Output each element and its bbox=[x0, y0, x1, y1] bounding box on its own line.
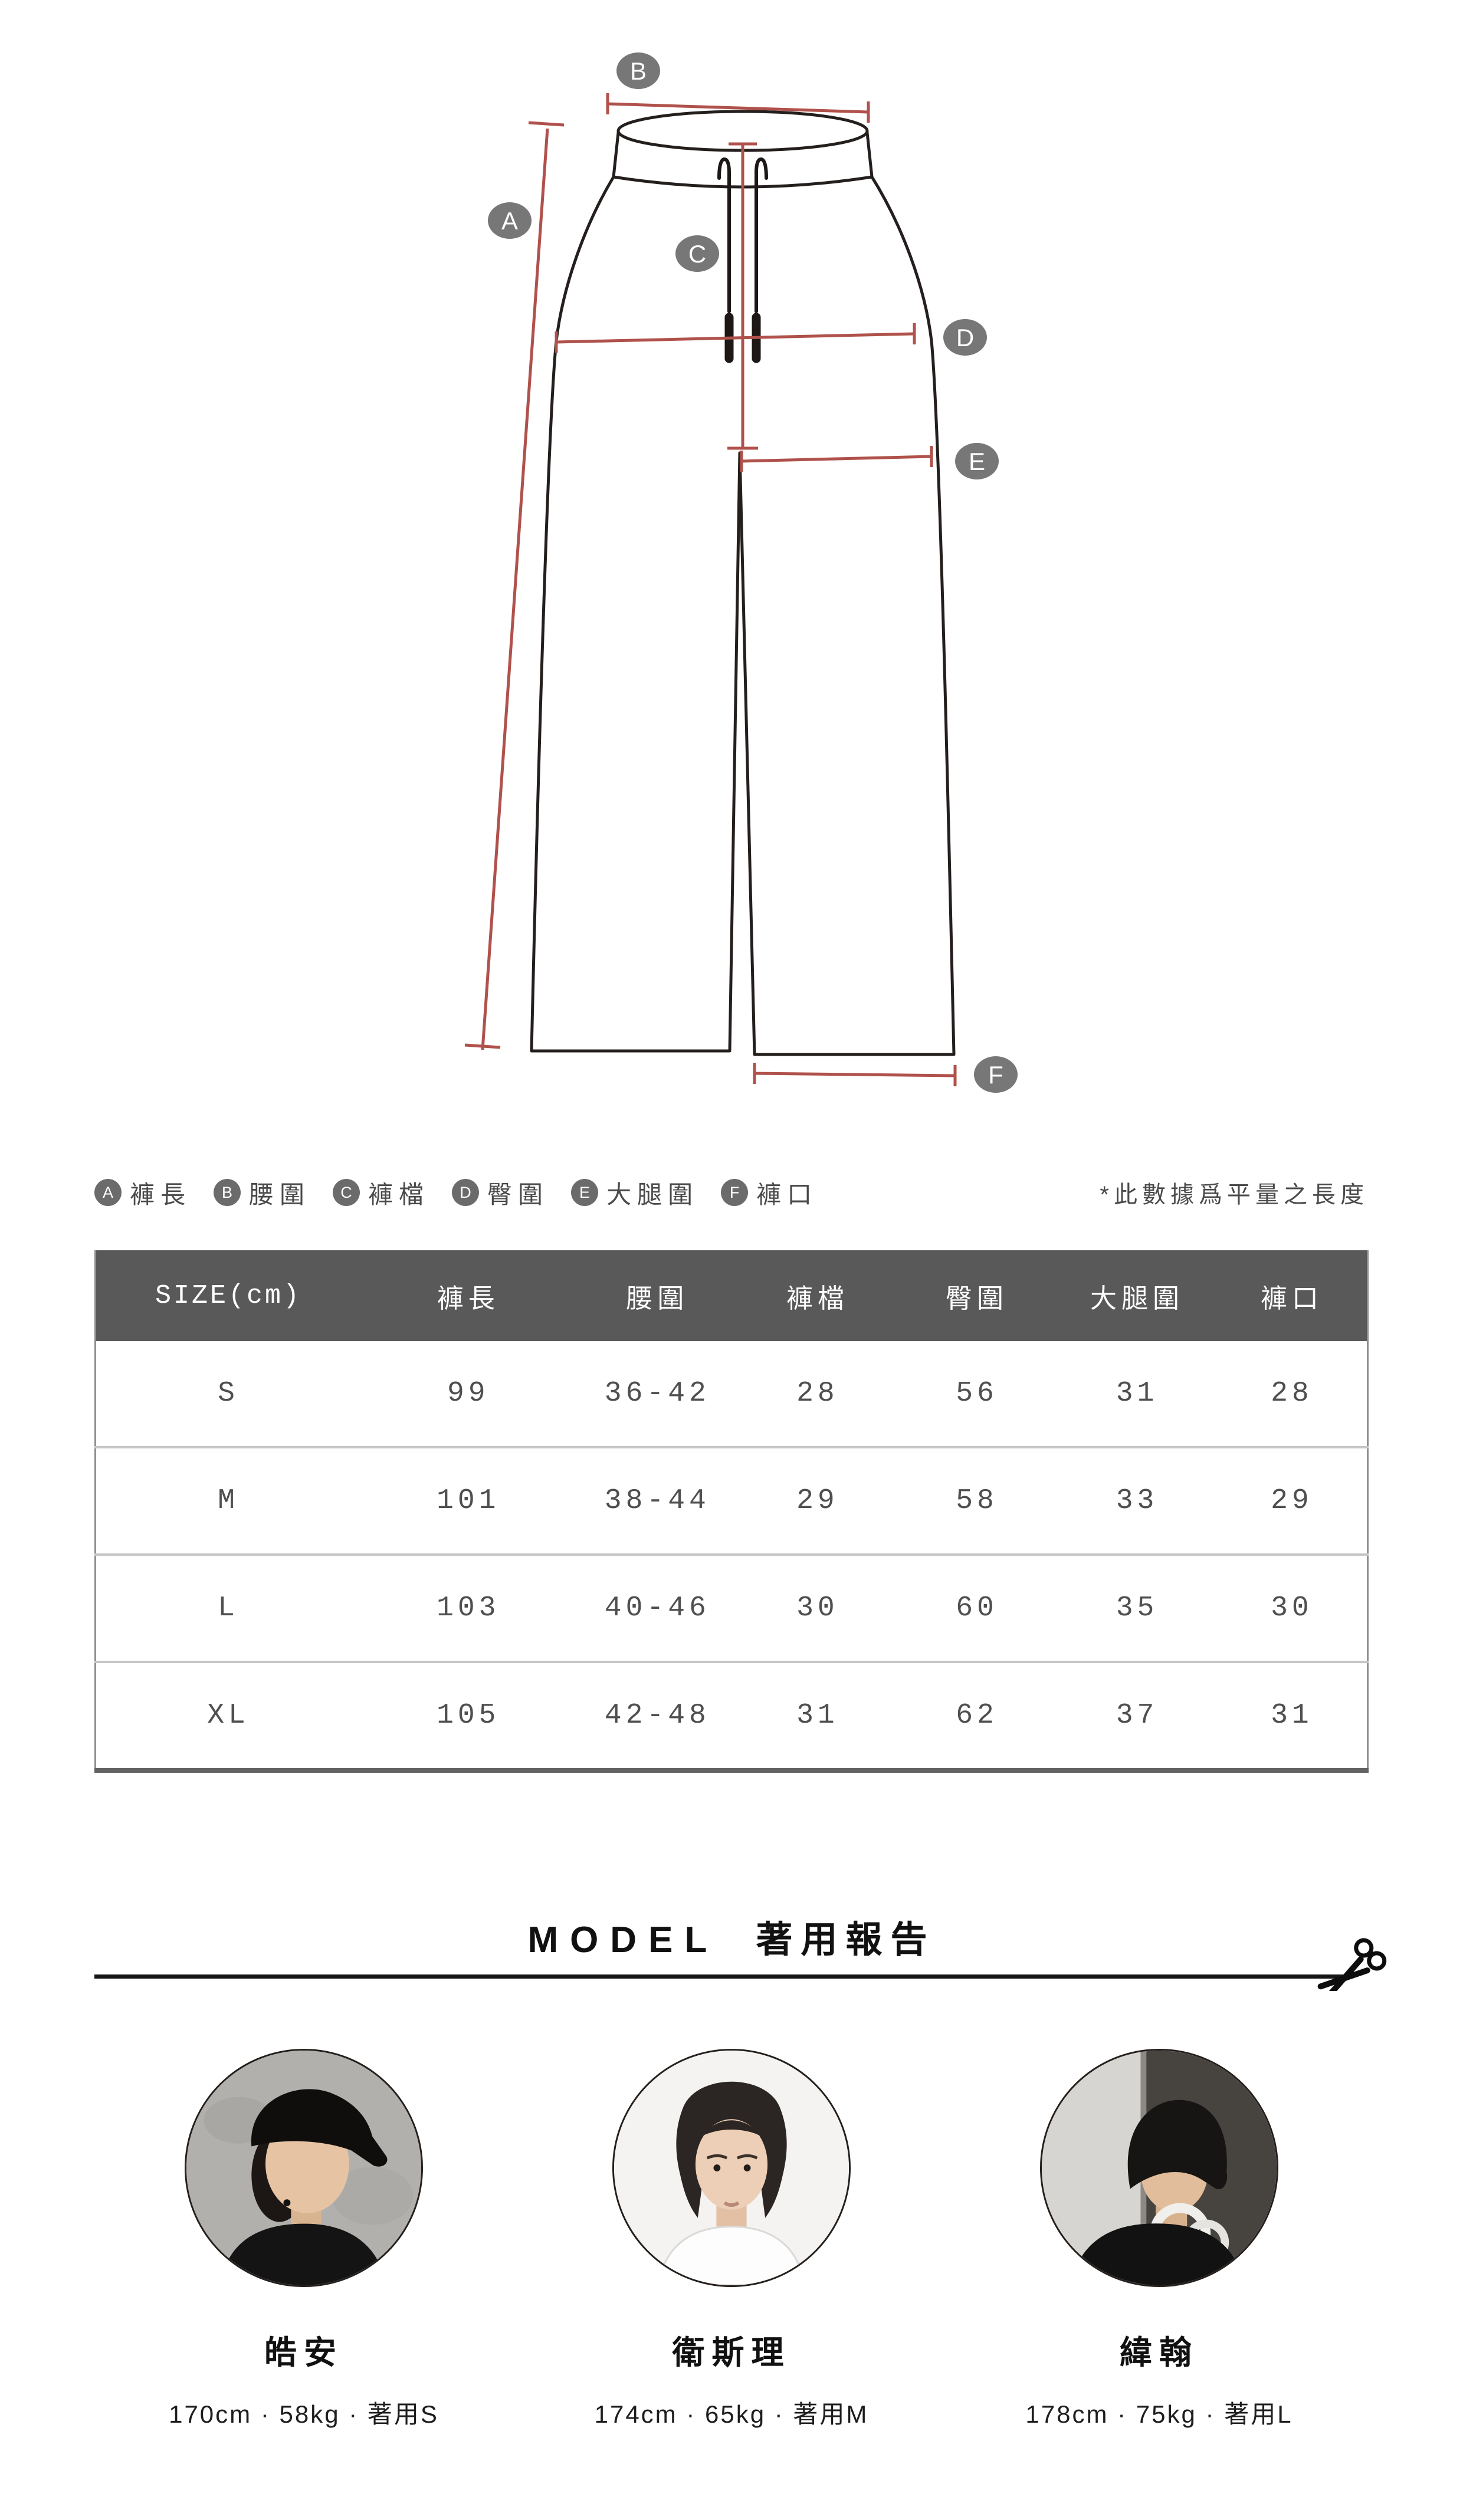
col-header-waist: 腰圍 bbox=[576, 1250, 739, 1341]
pants-measure-diagram: A B C D E F bbox=[431, 35, 1080, 1126]
model-card-weihan: 緯翰 178cm · 75kg · 著用L bbox=[1012, 2049, 1307, 2430]
model-card-wesley: 衛斯理 174cm · 65kg · 著用M bbox=[584, 2049, 879, 2430]
measure-line-F bbox=[755, 1063, 955, 1086]
diagram-label-e: E bbox=[955, 443, 999, 479]
svg-text:A: A bbox=[501, 207, 518, 235]
col-header-thigh: 大腿圍 bbox=[1057, 1250, 1217, 1341]
table-row: M 101 38-44 29 58 33 29 bbox=[96, 1447, 1368, 1555]
legend-item-f: F 褲口 bbox=[721, 1175, 818, 1211]
size-cell: S bbox=[96, 1341, 361, 1447]
legend-circle-d: D bbox=[452, 1179, 479, 1206]
legend-label-c: 褲檔 bbox=[368, 1175, 429, 1211]
size-table-header-row: SIZE(cm) 褲長 腰圍 褲檔 臀圍 大腿圍 褲口 bbox=[96, 1250, 1368, 1341]
size-cell: M bbox=[96, 1447, 361, 1555]
scissors-icon bbox=[1307, 1920, 1396, 1991]
legend-circle-e: E bbox=[571, 1179, 598, 1206]
drawstring-right bbox=[756, 159, 766, 311]
col-header-crotch: 褲檔 bbox=[739, 1250, 897, 1341]
model-stats: 178cm · 75kg · 著用L bbox=[1012, 2394, 1307, 2430]
size-cell: L bbox=[96, 1555, 361, 1662]
measure-line-E bbox=[742, 446, 931, 472]
model-photo-weihan bbox=[1040, 2049, 1278, 2287]
measure-line-C bbox=[727, 144, 758, 448]
table-row: S 99 36-42 28 56 31 28 bbox=[96, 1341, 1368, 1447]
model-stats: 170cm · 58kg · 著用S bbox=[156, 2394, 451, 2430]
legend-circle-f: F bbox=[721, 1179, 748, 1206]
legend-label-d: 臀圍 bbox=[487, 1175, 549, 1211]
measure-legend: A 褲長 B 腰圍 C 褲檔 D 臀圍 E 大腿圍 F 褲口 *此數據爲平量之長… bbox=[94, 1175, 1369, 1210]
diagram-label-b: B bbox=[616, 52, 660, 89]
model-report-title-zh: 著用報告 bbox=[756, 1920, 936, 1960]
diagram-label-a: A bbox=[488, 202, 532, 239]
size-cell: XL bbox=[96, 1662, 361, 1770]
measure-line-D bbox=[556, 323, 914, 353]
col-header-length: 褲長 bbox=[360, 1250, 576, 1341]
diagram-label-f: F bbox=[974, 1056, 1018, 1093]
legend-item-c: C 褲檔 bbox=[333, 1175, 429, 1211]
model-name: 衛斯理 bbox=[584, 2326, 879, 2373]
size-chart-page: A B C D E F bbox=[0, 0, 1463, 2520]
svg-text:B: B bbox=[630, 57, 647, 85]
legend-label-e: 大腿圍 bbox=[606, 1175, 698, 1211]
waistband-left-side bbox=[614, 133, 618, 177]
legend-circle-b: B bbox=[214, 1179, 241, 1206]
legend-circle-c: C bbox=[333, 1179, 360, 1206]
model-card-haoan: 皓安 170cm · 58kg · 著用S bbox=[156, 2049, 451, 2430]
legend-circle-a: A bbox=[94, 1179, 122, 1206]
size-table: SIZE(cm) 褲長 腰圍 褲檔 臀圍 大腿圍 褲口 S 99 36-42 2… bbox=[94, 1250, 1369, 1773]
model-name: 皓安 bbox=[156, 2326, 451, 2373]
legend-label-b: 腰圍 bbox=[249, 1175, 310, 1211]
waistband-right-side bbox=[867, 133, 872, 177]
divider-line bbox=[94, 1974, 1352, 1979]
legend-item-b: B 腰圍 bbox=[214, 1175, 310, 1211]
legend-label-a: 褲長 bbox=[130, 1175, 191, 1211]
diagram-label-d: D bbox=[943, 319, 987, 356]
table-row: XL 105 42-48 31 62 37 31 bbox=[96, 1662, 1368, 1770]
svg-text:E: E bbox=[969, 448, 985, 475]
model-report-title-en: MODEL bbox=[527, 1920, 719, 1960]
model-stats: 174cm · 65kg · 著用M bbox=[584, 2394, 879, 2430]
measure-line-A bbox=[465, 123, 564, 1050]
svg-text:F: F bbox=[988, 1061, 1003, 1089]
pants-diagram-svg: A B C D E F bbox=[431, 35, 1080, 1126]
legend-item-a: A 褲長 bbox=[94, 1175, 191, 1211]
diagram-label-c: C bbox=[675, 235, 719, 272]
legend-item-e: E 大腿圍 bbox=[571, 1175, 698, 1211]
legend-label-f: 褲口 bbox=[756, 1175, 818, 1211]
legend-item-d: D 臀圍 bbox=[452, 1175, 549, 1211]
svg-text:D: D bbox=[956, 324, 974, 351]
col-header-hem: 褲口 bbox=[1217, 1250, 1368, 1341]
model-photo-wesley bbox=[612, 2049, 851, 2287]
col-header-hip: 臀圍 bbox=[897, 1250, 1058, 1341]
table-row: L 103 40-46 30 60 35 30 bbox=[96, 1555, 1368, 1662]
model-name: 緯翰 bbox=[1012, 2326, 1307, 2373]
svg-text:C: C bbox=[688, 240, 706, 268]
col-header-size: SIZE(cm) bbox=[96, 1250, 361, 1341]
model-report-title: MODEL 著用報告 bbox=[0, 1910, 1463, 1963]
model-photo-haoan bbox=[185, 2049, 423, 2287]
drawstring-left bbox=[719, 159, 729, 311]
flat-measure-note: *此數據爲平量之長度 bbox=[1100, 1175, 1369, 1210]
